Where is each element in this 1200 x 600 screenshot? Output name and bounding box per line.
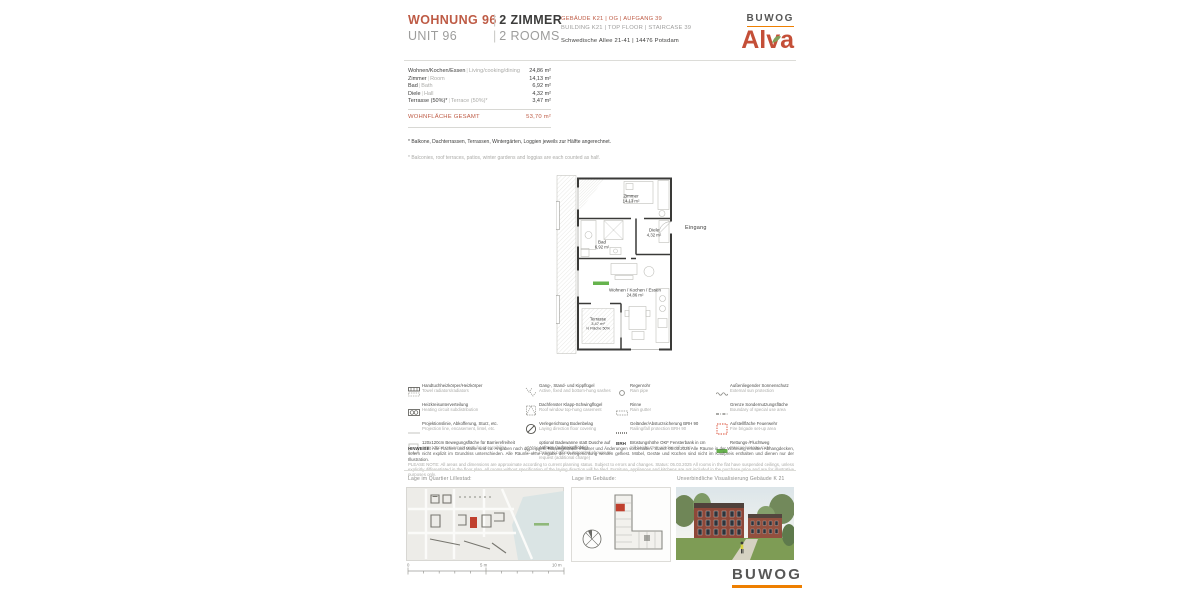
room-area-value: 24,86 m²: [529, 68, 551, 76]
room-area: 3,47 m²: [591, 321, 605, 326]
floor-direction-icon: [525, 421, 539, 440]
room-area: 14,13 m²: [623, 199, 640, 204]
building-line-en: BUILDING K21 | TOP FLOOR | STAIRCASE 39: [561, 24, 691, 33]
header-divider: [404, 60, 796, 61]
separator: |: [490, 13, 499, 27]
room-label-de: Terrasse (50%)*: [408, 98, 447, 104]
room-name: Wohnen / Kochen / Essen: [609, 288, 661, 293]
building-visualization: [676, 487, 794, 560]
legend-item: Aufstellfläche FeuerwehrFire brigade set…: [716, 421, 796, 440]
radiator-icon: [408, 383, 422, 402]
notes-de-label: HINWEISE:: [408, 446, 431, 451]
total-area-value: 53,70 m²: [526, 114, 551, 122]
legend-label-en: Fire brigade set-up area: [730, 426, 777, 431]
building-panel-label: Lage im Gebäude:: [572, 476, 616, 482]
room-area-value: 3,47 m²: [532, 98, 551, 106]
window-sash-icon: [525, 383, 539, 402]
table-row: Diele|Hall 4,32 m²: [408, 91, 551, 99]
scale-ticks: [408, 568, 564, 575]
buwog-wordmark: BUWOG: [732, 566, 802, 583]
legend-item: Handtuchheizkörper/HeizkörperTowel radia…: [408, 383, 520, 402]
railing-icon: [616, 421, 630, 440]
scale-max: 10 m: [552, 563, 562, 568]
alva-logo: Alva: [741, 26, 794, 55]
legend-label-en: Railing/fall protection BRH 90: [630, 426, 698, 431]
table-divider: [408, 127, 551, 128]
separator: |: [490, 29, 499, 43]
room-label-de: Diele: [408, 91, 421, 97]
room-name: Zimmer: [623, 194, 639, 199]
building-position-plan: [571, 487, 671, 562]
notes-de-text: Alle Flächen und Maße sind ca. Angaben n…: [408, 446, 794, 462]
room-label-en: Hall: [424, 91, 433, 97]
room-label-en: Bath: [421, 83, 432, 89]
legend-label-en: External sun protection: [730, 388, 789, 393]
address-line: Schwedische Allee 21-41 | 14476 Potsdam: [561, 37, 691, 46]
rooms-count-en: 2 ROOMS: [499, 29, 559, 43]
table-row: Terrasse (50%)*|Terrace (50%)* 3,47 m²: [408, 98, 551, 106]
legend-item: Dachfenster Klapp-SchwingflügelRoof wind…: [525, 402, 615, 421]
legend-label-en: Towel radiators/radiators: [422, 388, 482, 393]
legend-item: RinneRain gutter: [616, 402, 714, 421]
unit-title-en: UNIT 96: [408, 28, 490, 44]
area-table: Wohnen/Kochen/Essen|Living/cooking/dinin…: [408, 68, 551, 131]
scale-mid: 5 m: [480, 563, 488, 568]
unit-title-row: WOHNUNG 96|2 ZIMMER: [408, 12, 562, 28]
legend-label-en: Active, fixed and bottom-hung sashes: [539, 388, 611, 393]
room-label-en: Living/cooking/dining: [469, 68, 520, 74]
table-row: Zimmer|Room 14,13 m²: [408, 76, 551, 84]
park-marker: [534, 523, 549, 526]
rain-pipe-icon: [616, 383, 630, 402]
footnote-en: * Balconies, roof terraces, patios, wint…: [408, 155, 623, 161]
building-info: GEBÄUDE K21 | OG | AUFGANG 39 BUILDING K…: [561, 15, 691, 46]
unit-header: WOHNUNG 96|2 ZIMMER UNIT 96|2 ROOMS: [408, 12, 562, 44]
buwog-underline: [732, 585, 802, 588]
footnote-de: * Balkone, Dachterrassen, Terrassen, Win…: [408, 139, 623, 145]
roof-window-icon: [525, 402, 539, 421]
legend-item: Gang-, Stand- und KippflügelActive, fixe…: [525, 383, 615, 402]
floor-plan-drawing: Zimmer 14,13 m² Diele 4,32 m² Bad 6,92 m…: [556, 172, 674, 357]
notes-divider: [404, 470, 796, 471]
scale-zero: 0: [407, 563, 410, 568]
sun-protection-icon: [716, 383, 730, 402]
legend-item: Grenze SondernutzungsflächeBoundary of s…: [716, 402, 796, 421]
notes-de: HINWEISE: Alle Flächen und Maße sind ca.…: [408, 446, 794, 462]
room-name: Bad: [598, 240, 607, 245]
access-walkway: [556, 176, 576, 354]
room-label-de: Zimmer: [408, 76, 427, 82]
legend-label-en: Projection line, encasement, lintel, etc…: [422, 426, 498, 431]
room-label-de: Wohnen/Kochen/Essen: [408, 68, 465, 74]
legend-label-en: Rain pipe: [630, 388, 650, 393]
legend-label-en: Laying direction floor covering: [539, 426, 596, 431]
table-divider: [408, 109, 551, 110]
legend-item: Verlegerichtung BodenbelagLaying directi…: [525, 421, 615, 440]
table-row: Bad|Bath 6,92 m²: [408, 83, 551, 91]
entrance-label: Eingang: [685, 225, 707, 231]
room-area-value: 6,92 m²: [532, 83, 551, 91]
room-area: 4,32 m²: [647, 233, 662, 238]
heating-circuit-icon: [408, 402, 422, 421]
legend-item: Projektionslinie, Abkofferung, Sturz, et…: [408, 421, 520, 440]
legend-item: RegenrohrRain pipe: [616, 383, 714, 402]
unit-title-row-en: UNIT 96|2 ROOMS: [408, 28, 562, 44]
highlighted-building-marker: [470, 517, 477, 528]
room-label-de: Bad: [408, 83, 418, 89]
legend-column-3: RegenrohrRain pipe RinneRain gutter Gelä…: [616, 383, 714, 454]
room-area-value: 4,32 m²: [532, 91, 551, 99]
room-name: Diele: [649, 228, 660, 233]
buwog-logo-bottom: BUWOG: [732, 566, 802, 588]
room-label-en: Room: [430, 76, 445, 82]
floor-plan: Zimmer 14,13 m² Diele 4,32 m² Bad 6,92 m…: [556, 172, 674, 357]
building-line-de: GEBÄUDE K21 | OG | AUFGANG 39: [561, 15, 691, 24]
quarter-site-map: [406, 487, 564, 561]
legend-item: HeizkreisunterverteilungHeating circuit …: [408, 402, 520, 421]
room-area-value: 14,13 m²: [529, 76, 551, 84]
visualization-panel-label: Unverbindliche Visualisierung Gebäude K …: [677, 476, 785, 482]
legend-label-en: Roof window top-hung casement: [539, 407, 602, 412]
legend-item: Außenliegender SonnenschutzExternal sun …: [716, 383, 796, 402]
map-panel-label: Lage im Quartier Lillestad:: [408, 476, 472, 482]
notes-en-label: PLEASE NOTE:: [408, 462, 439, 467]
room-area-note: ½ Fläche 50%: [586, 327, 611, 331]
room-label-en: Terrace (50%)*: [451, 98, 488, 104]
room-area: 24,86 m²: [627, 293, 644, 298]
escape-route-marker: [593, 282, 609, 286]
notes-block: HINWEISE: Alle Flächen und Maße sind ca.…: [408, 446, 794, 478]
fire-brigade-icon: [716, 421, 730, 440]
floorplan-datasheet: WOHNUNG 96|2 ZIMMER UNIT 96|2 ROOMS GEBÄ…: [404, 0, 796, 600]
rooms-count-de: 2 ZIMMER: [499, 13, 562, 27]
room-area: 6,92 m²: [595, 245, 610, 250]
legend-item: Geländer/Absturzsicherung BRH 90Railing/…: [616, 421, 714, 440]
gutter-icon: [616, 402, 630, 421]
table-row: Wohnen/Kochen/Essen|Living/cooking/dinin…: [408, 68, 551, 76]
highlighted-unit-marker: [616, 504, 625, 512]
legend-label-en: Heating circuit subdistribution: [422, 407, 478, 412]
total-area-label: WOHNFLÄCHE GESAMT: [408, 114, 480, 122]
legend-label-en: Boundary of special use area: [730, 407, 788, 412]
total-area-row: WOHNFLÄCHE GESAMT 53,70 m²: [408, 113, 551, 124]
leaf-icon: [771, 22, 782, 51]
alva-wordmark: Alva: [741, 26, 794, 54]
unit-title-de: WOHNUNG 96: [408, 12, 490, 28]
boundary-icon: [716, 402, 730, 421]
legend-label-en: Rain gutter: [630, 407, 651, 412]
projection-line-icon: [408, 421, 422, 440]
scale-bar: 0 5 m 10 m: [406, 562, 568, 582]
